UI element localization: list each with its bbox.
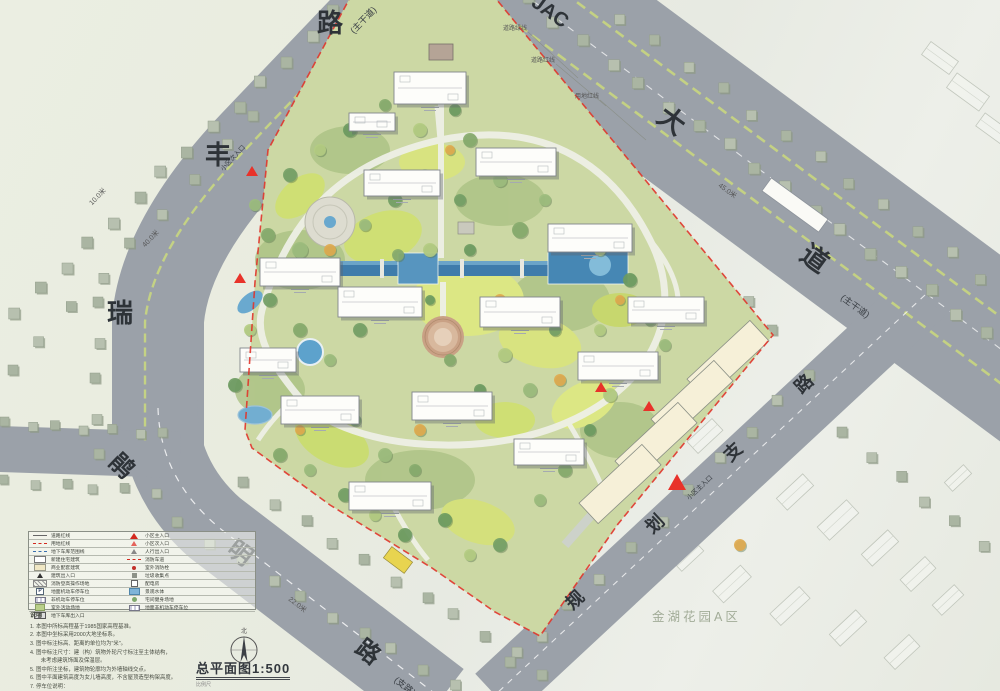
legend-row: 建筑出入口垃圾收集点 [29,572,255,580]
legend-row: 商业配套建筑室外消防栓 [29,564,255,572]
pavilion [458,222,474,234]
pedestrian-entrance-symbol [131,549,137,554]
surface-bike-parking-symbol [129,605,140,611]
note-line: 3. 图中标注标高、距离的单位均为"米"。 [30,640,330,649]
substation-symbol [131,580,138,587]
entrance-triangle-nw2 [234,273,246,283]
activity-area-symbol [35,604,45,611]
legend-row: 室外活动场地地面非机动车停车位 [29,604,255,612]
lagoon [238,406,272,424]
fire-apparatus-area-symbol [33,580,47,587]
callout-2: 道路红线 [531,56,555,64]
fitness-area-symbol [132,597,137,602]
residential-symbol [34,556,46,563]
legend-row: 消防登高操作场地配电房 [29,580,255,588]
north-label: 北 [241,627,247,635]
callout-1: 道路绿线 [503,24,527,32]
trash-point-symbol [132,573,137,578]
circular-plaza [305,197,355,247]
callout-3: 用地红线 [575,92,599,100]
main-entrance-symbol [130,533,138,539]
hydrant-symbol [132,566,136,570]
masterplan-canvas: 瑞 丰 路 (主干道) 10.0米 40.0米 JAC 大 道 (主干道) 45… [0,0,1000,691]
legend-row: 新建住宅建筑消防车道 [29,556,255,564]
secondary-entrance-symbol [131,541,137,546]
legend-row: 道路红线小区主入口 [29,532,255,540]
amphitheater [422,316,464,358]
parking-symbol: P [36,588,43,595]
legend-table: 道路红线小区主入口 用地红线小区次入口 地下车库范围线人行出入口 新建住宅建筑消… [28,531,256,610]
bike-parking-symbol [35,597,46,603]
legend-row: P地面机动车停车位景观水体 [29,588,255,596]
scale-caption: 比例尺 [196,681,290,688]
commercial-symbol [34,564,46,571]
road-nw-char-3: 路 [317,8,344,38]
legend-row: 用地红线小区次入口 [29,540,255,548]
road-redline-symbol [33,535,47,536]
road-nw-char-1: 瑞 [107,298,133,328]
water-symbol [129,588,140,595]
legend-row: 非机动车停车位宅间健身场地 [29,596,255,604]
title-block: 总平面图1:500 比例尺 [196,658,290,688]
note-line: 4. 图中标注尺寸：建（构）筑物外轮尺寸标注至主体结构， [30,649,330,658]
round-pool [297,339,323,365]
drawing-title: 总平面图1:500 [196,661,290,680]
legend-row: 地下车库范围线人行出入口 [29,548,255,556]
building-entry-symbol [37,573,43,578]
property-line-symbol [33,543,47,544]
neighborhood-label: 金湖花园A区 [652,606,741,625]
clubhouse [429,44,453,60]
note-line: 1. 本图中所标高程基于1985国家高程基准。 [30,623,330,632]
fire-lane-symbol [127,559,141,560]
notes-heading: 说明 [30,612,330,622]
note-line: 2. 本图中坐标采用2000大地坐标系。 [30,631,330,640]
road-nw-dim-1: 10.0米 [87,186,108,207]
road-west-stub [0,448,180,455]
basement-line-symbol [33,551,47,552]
